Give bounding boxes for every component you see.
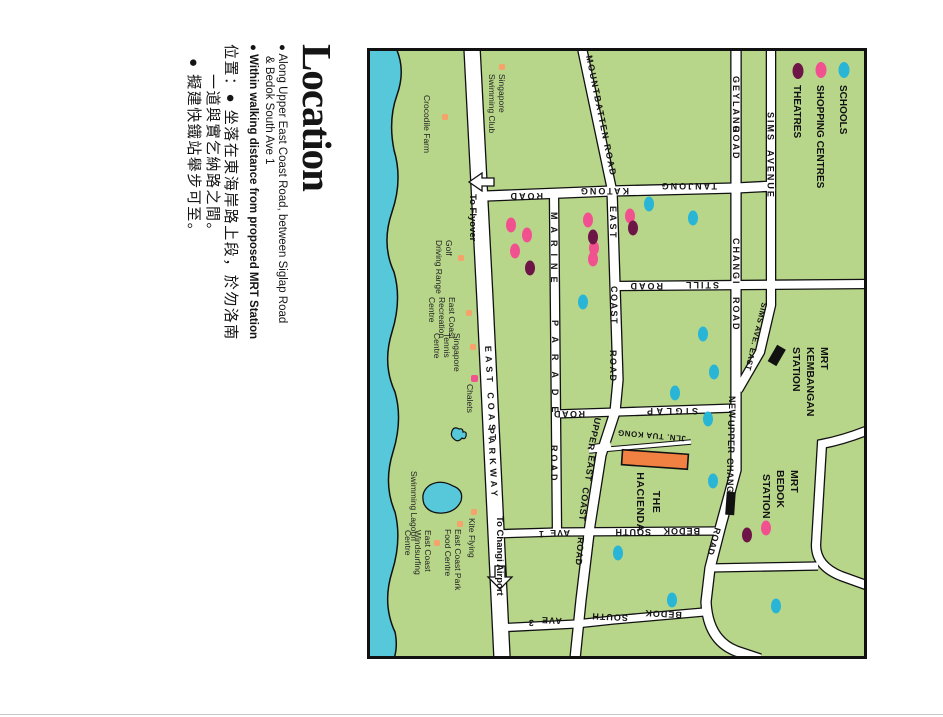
tennis-centre-label: Tennis — [442, 333, 452, 358]
road-label-changi-road: ROAD — [731, 297, 741, 332]
chinese-line-3: ● 擬建快鐵站舉步可至。 — [184, 44, 202, 644]
road-label-marine-road: ROAD — [549, 445, 559, 484]
bullet-location-1: ● Along Upper East Coast Road, between S… — [262, 44, 288, 644]
to-changi-airport-label: To Changi Airport — [494, 516, 505, 597]
to-flyover-label: To Flyover — [467, 194, 478, 242]
road-label-still: STILL — [684, 280, 719, 290]
crocodile-farm-label: Crocodile Farm — [422, 95, 432, 153]
bedok-station-label: STATION — [760, 474, 772, 519]
road-label-siglap-road: ROAD — [553, 409, 586, 419]
hacienda-label: HACIENDA — [634, 472, 646, 531]
legend-shopping-dot — [816, 62, 827, 78]
road-label-changi: CHANGI — [731, 238, 741, 286]
legend-schools-label: SCHOOLS — [837, 85, 848, 135]
road-label-bsa1-bedok: BEDOK — [662, 526, 700, 536]
road-label-bsa1-num: 1 — [538, 529, 544, 539]
legend-school-dot — [839, 62, 850, 78]
road-label-geylang-road: ROAD — [731, 126, 741, 161]
hacienda-label: THE — [650, 491, 662, 514]
chinese-line-1: 位置：● 坐落在東海岸路上段，於勿洛南 — [221, 44, 239, 644]
bedok-station-label: MRT — [788, 470, 800, 493]
chinese-line-2: 一道與實乞納路之間。 — [203, 44, 221, 644]
road-label-new-changi: CHANGI — [725, 458, 735, 497]
road-label-bsa3-bedok: BEDOK — [644, 608, 682, 620]
golf-driving-range-label: Golf — [444, 240, 454, 256]
road-label-marine: MARINE — [549, 212, 559, 290]
bedok-station-label: BEDOK — [774, 470, 786, 508]
kite-flying-label: Kite Flying — [467, 518, 477, 558]
road-label-sims-avenue: AVENUE — [766, 150, 776, 199]
tennis-centre-label: Singapore — [452, 333, 462, 372]
swimming-lagoon-water — [423, 482, 462, 513]
bullet-1-line-1: ● Along Upper East Coast Road, between S… — [276, 44, 288, 323]
food-centre-label: East Coast Park — [453, 529, 463, 591]
kembangan-station-label: STATION — [790, 347, 802, 392]
location-text-block: Location ● Along Upper East Coast Road, … — [184, 44, 337, 644]
road-label-new: NEW — [727, 396, 737, 419]
brochure-page: SCHOOLS SHOPPING CENTRES THEATRES MRT KE… — [0, 0, 943, 717]
road-label-tanjong: TANJONG — [660, 181, 717, 191]
road-label-katong: KATONG — [579, 186, 629, 196]
location-map: SCHOOLS SHOPPING CENTRES THEATRES MRT KE… — [366, 48, 867, 660]
road-label-east: EAST — [608, 206, 618, 240]
windsurfing-centre-label: Windsurfing — [413, 530, 423, 575]
road-label-coast: COAST — [609, 286, 619, 325]
page-title: Location — [296, 44, 337, 644]
windsurfing-centre-label: Centre — [403, 530, 413, 556]
golf-driving-range-label: Driving Range — [434, 240, 444, 294]
legend-theatre-dot — [793, 63, 804, 79]
map-svg: SCHOOLS SHOPPING CENTRES THEATRES MRT KE… — [366, 48, 867, 660]
road-label-new-upper: UPPER — [726, 420, 736, 454]
scan-edge — [0, 714, 943, 715]
road-label-parade: PARADE — [550, 320, 560, 423]
road-label-bsa3-south: SOUTH — [591, 611, 628, 623]
recreation-centre-label: Centre — [427, 297, 437, 323]
road-label-east-coast-road: ROAD — [608, 350, 618, 383]
windsurfing-centre-label: East Coast — [423, 530, 433, 572]
swimming-club-label: Singapore — [497, 74, 507, 113]
road-label-bsa1-ave: AVE — [549, 528, 570, 538]
road-label-bsa3-ave: AVE — [541, 615, 562, 626]
legend-theatres-label: THEATRES — [791, 85, 802, 138]
road-label-tanjong-road: ROAD — [509, 191, 544, 201]
bullet-1-line-2: & Bedok South Ave 1 — [263, 56, 275, 164]
road-label-still-road: ROAD — [629, 281, 664, 291]
bullet-location-2: ● Within walking distance from proposed … — [246, 44, 259, 644]
kembangan-station-label: MRT — [818, 347, 830, 370]
road-label-siglap: SIGLAP — [643, 406, 698, 416]
road-connector — [709, 566, 818, 568]
food-centre-label: Food Centre — [443, 529, 453, 577]
tennis-centre-label: Centre — [432, 333, 442, 359]
legend-shopping-label: SHOPPING CENTRES — [814, 85, 825, 189]
road-label-bsa3-num: 3 — [528, 618, 535, 628]
chalets-label: Chalets — [465, 384, 475, 413]
swimming-club-label: Swimming Club — [487, 74, 497, 133]
kembangan-station-label: KEMBANGAN — [804, 347, 816, 416]
chinese-text: 位置：● 坐落在東海岸路上段，於勿洛南 一道與實乞納路之間。 ● 擬建快鐵站舉步… — [184, 44, 239, 644]
road-label-sims: SIMS — [766, 112, 776, 142]
